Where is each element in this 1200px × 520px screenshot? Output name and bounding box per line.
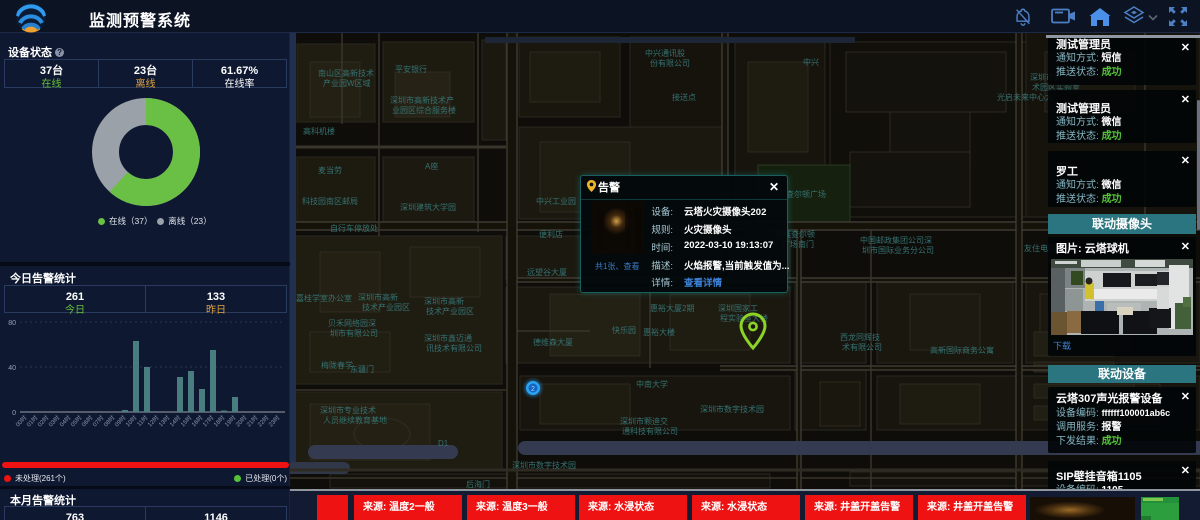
svg-text:09时: 09时	[113, 414, 128, 429]
svg-text:深圳市高新技术产: 深圳市高新技术产	[390, 95, 454, 105]
svg-text:梅陇春学: 梅陇春学	[321, 360, 353, 370]
svg-text:嘉桂学室办公室: 嘉桂学室办公室	[296, 293, 352, 303]
svg-text:11时: 11时	[135, 414, 149, 428]
svg-text:惠裕大厦2期: 惠裕大厦2期	[650, 303, 694, 313]
svg-text:产业园W区域: 产业园W区域	[323, 78, 371, 88]
svg-text:德维森大厦: 德维森大厦	[533, 337, 573, 347]
svg-text:深圳市鑫迈通: 深圳市鑫迈通	[424, 333, 472, 343]
svg-text:04时: 04时	[58, 414, 73, 429]
svg-text:平安银行: 平安银行	[395, 64, 427, 74]
svg-text:19时: 19时	[223, 414, 238, 429]
svg-text:深圳市高新: 深圳市高新	[358, 292, 398, 302]
svg-text:圳市有限公司: 圳市有限公司	[330, 328, 378, 338]
svg-text:06时: 06时	[80, 414, 95, 429]
svg-text:15时: 15时	[179, 414, 194, 429]
svg-text:深圳市高新: 深圳市高新	[424, 296, 464, 306]
svg-text:02时: 02时	[36, 414, 51, 429]
svg-text:16时: 16时	[190, 414, 205, 429]
svg-text:01时: 01时	[25, 414, 40, 429]
svg-text:07时: 07时	[91, 414, 106, 429]
svg-text:22时: 22时	[256, 414, 271, 429]
svg-text:深圳建筑大学园: 深圳建筑大学园	[400, 202, 456, 212]
svg-text:西龙同辉技: 西龙同辉技	[840, 332, 880, 342]
svg-text:A座: A座	[425, 161, 438, 171]
svg-text:03时: 03时	[47, 414, 62, 429]
svg-text:中兴: 中兴	[803, 57, 819, 67]
svg-text:12时: 12时	[146, 414, 161, 429]
svg-text:术有限公司: 术有限公司	[842, 342, 882, 352]
svg-text:深圳市颗迪交: 深圳市颗迪交	[620, 416, 668, 426]
svg-text:惠裕大楼: 惠裕大楼	[643, 327, 675, 337]
svg-text:东疆门: 东疆门	[350, 364, 374, 374]
svg-text:10时: 10时	[124, 414, 139, 429]
svg-text:D1: D1	[438, 439, 449, 448]
svg-text:南山区高新技术: 南山区高新技术	[318, 68, 374, 78]
svg-text:深圳市专业技术: 深圳市专业技术	[320, 405, 376, 415]
svg-text:高新国际商务公寓: 高新国际商务公寓	[930, 345, 994, 355]
svg-text:深圳市数字技术园: 深圳市数字技术园	[700, 404, 764, 414]
svg-text:40: 40	[8, 365, 16, 372]
svg-text:14时: 14时	[168, 414, 183, 429]
svg-text:中兴工业园: 中兴工业园	[536, 196, 576, 206]
svg-text:业园区综合服务楼: 业园区综合服务楼	[392, 105, 456, 115]
svg-text:中国邮政集团公司深: 中国邮政集团公司深	[860, 235, 932, 245]
svg-text:快乐园: 快乐园	[612, 325, 636, 335]
svg-text:20时: 20时	[234, 414, 249, 429]
svg-text:技术产业园区: 技术产业园区	[426, 306, 474, 316]
svg-text:光启未来中心大: 光启未来中心大	[997, 92, 1053, 102]
svg-text:讯技术有限公司: 讯技术有限公司	[426, 343, 482, 353]
svg-text:深圳市数字技术园: 深圳市数字技术园	[512, 460, 576, 470]
svg-text:科技园南区邮局: 科技园南区邮局	[302, 196, 358, 206]
svg-text:贝禾网络园深: 贝禾网络园深	[328, 318, 376, 328]
svg-text:自行车停放处: 自行车停放处	[330, 223, 378, 233]
svg-text:13时: 13时	[157, 414, 172, 429]
svg-text:05时: 05时	[69, 414, 84, 429]
svg-text:份有限公司: 份有限公司	[650, 58, 690, 68]
svg-text:圳市国际业务分公司: 圳市国际业务分公司	[862, 245, 934, 255]
svg-text:08时: 08时	[102, 414, 117, 429]
svg-text:0: 0	[12, 410, 16, 417]
svg-text:技术产业园区: 技术产业园区	[362, 302, 410, 312]
svg-text:接送点: 接送点	[672, 92, 696, 102]
svg-text:18时: 18时	[212, 414, 227, 429]
svg-text:高科机楼: 高科机楼	[303, 126, 335, 136]
svg-text:查尔顿广场: 查尔顿广场	[786, 189, 826, 199]
svg-text:80: 80	[8, 320, 16, 327]
svg-text:中南大学: 中南大学	[636, 379, 668, 389]
svg-text:远望谷大厦: 远望谷大厦	[527, 267, 567, 277]
svg-text:深圳国家工: 深圳国家工	[718, 303, 758, 313]
svg-text:17时: 17时	[201, 414, 216, 429]
svg-text:中兴通讯股: 中兴通讯股	[645, 48, 685, 58]
svg-text:21时: 21时	[245, 414, 260, 429]
svg-text:2: 2	[531, 386, 535, 393]
svg-text:后海门: 后海门	[466, 479, 490, 489]
svg-text:通科技有限公司: 通科技有限公司	[622, 426, 678, 436]
svg-text:便利店: 便利店	[539, 229, 563, 239]
svg-text:23时: 23时	[267, 414, 282, 429]
svg-text:人员继续教育基地: 人员继续教育基地	[323, 415, 387, 425]
svg-text:麦当劳: 麦当劳	[318, 165, 342, 175]
